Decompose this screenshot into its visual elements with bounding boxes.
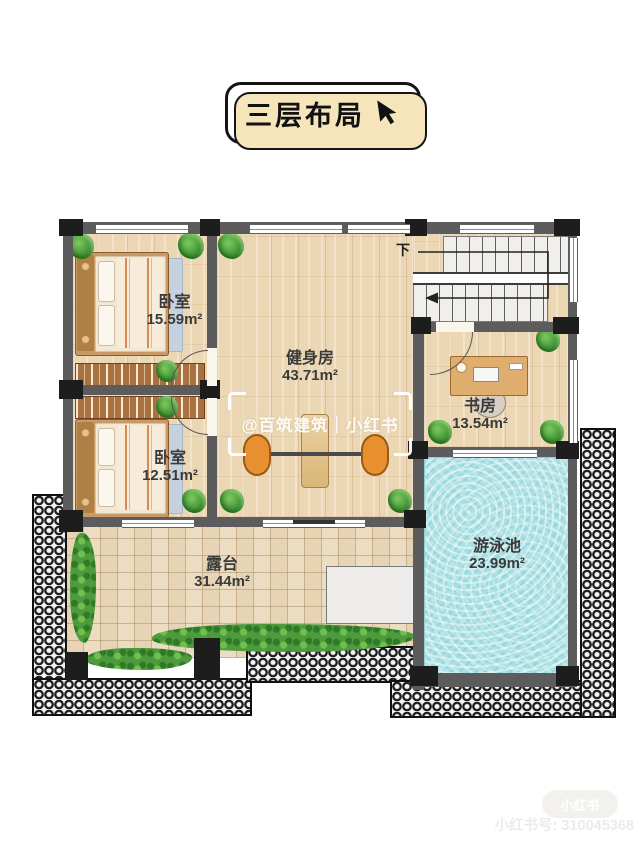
room-name: 游泳池 (442, 538, 552, 556)
door-gap-bedroom2 (207, 398, 217, 436)
bed-pillow (98, 261, 115, 302)
room-label-study: 书房 13.54m² (425, 398, 535, 433)
wall-gym-rightwing (413, 322, 424, 690)
bed-pillow (98, 305, 115, 346)
floor-title-text: 三层布局 (245, 94, 365, 133)
room-name: 卧室 (115, 450, 225, 468)
stairs-down-label: 下 (396, 240, 410, 260)
wall-corner (59, 380, 83, 399)
room-area: 13.54m² (425, 416, 535, 433)
room-area: 31.44m² (167, 574, 277, 591)
center-watermark: @百筑建筑｜小红书 (228, 392, 412, 456)
plant-icon (218, 233, 244, 259)
cursor-arrow-icon (375, 99, 401, 127)
xiaohongshu-account-id: 小红书号: 310045368 (468, 814, 634, 835)
room-label-gym: 健身房 43.71m² (255, 350, 365, 385)
room-label-bedroom-1: 卧室 15.59m² (122, 294, 227, 329)
room-name: 书房 (425, 398, 535, 416)
door-gap-bedroom1 (207, 348, 217, 386)
room-name: 健身房 (255, 350, 365, 368)
plant-icon (178, 233, 204, 259)
roof-eave-right (580, 428, 616, 718)
bed-headboard (77, 422, 94, 513)
window-bedroom1-north (96, 224, 188, 234)
bed-headboard (77, 255, 94, 351)
room-name: 露台 (167, 556, 277, 574)
plant-icon (220, 489, 244, 513)
room-label-pool: 游泳池 23.99m² (442, 538, 552, 573)
plant-icon (182, 489, 206, 513)
floorplan-page: 三层布局 (0, 0, 640, 853)
hedge-bottom-left (86, 648, 192, 670)
wall-corner (410, 666, 438, 686)
room-label-terrace: 露台 31.44m² (167, 556, 277, 591)
stairs-direction-line (400, 228, 575, 323)
sliding-door-leaf (293, 520, 335, 524)
room-area: 23.99m² (442, 556, 552, 573)
terrace-post (66, 652, 88, 680)
room-area: 12.51m² (115, 468, 225, 485)
terrace-stairs (326, 566, 416, 624)
hedge-left (70, 533, 96, 643)
bed-pillow (98, 428, 115, 466)
wall-corner (556, 666, 579, 686)
wall-corner (404, 510, 426, 528)
watermark-text: @百筑建筑｜小红书 (228, 392, 412, 456)
door-gap-study (436, 322, 474, 332)
room-label-bedroom-2: 卧室 12.51m² (115, 450, 225, 485)
bed-pillow (98, 469, 115, 507)
study-desk (450, 356, 528, 396)
wall-corner (59, 219, 83, 236)
wall-west (63, 222, 73, 527)
roof-eave-bottom-left (32, 678, 252, 716)
window-study-east (569, 360, 578, 443)
floor-title-badge: 三层布局 (225, 82, 421, 144)
room-area: 15.59m² (122, 312, 227, 329)
hedge-bottom (152, 624, 414, 652)
desk-item (509, 363, 523, 370)
room-name: 卧室 (122, 294, 227, 312)
window-study-south (453, 449, 537, 458)
window-bedroom2-south (122, 519, 194, 528)
terrace-post (194, 638, 220, 680)
laptop-icon (473, 367, 499, 382)
room-area: 43.71m² (255, 368, 365, 385)
wall-corner (59, 510, 83, 532)
wall-corner (200, 219, 220, 236)
wall-corner (556, 441, 579, 459)
window-gym-north-a (250, 224, 342, 234)
